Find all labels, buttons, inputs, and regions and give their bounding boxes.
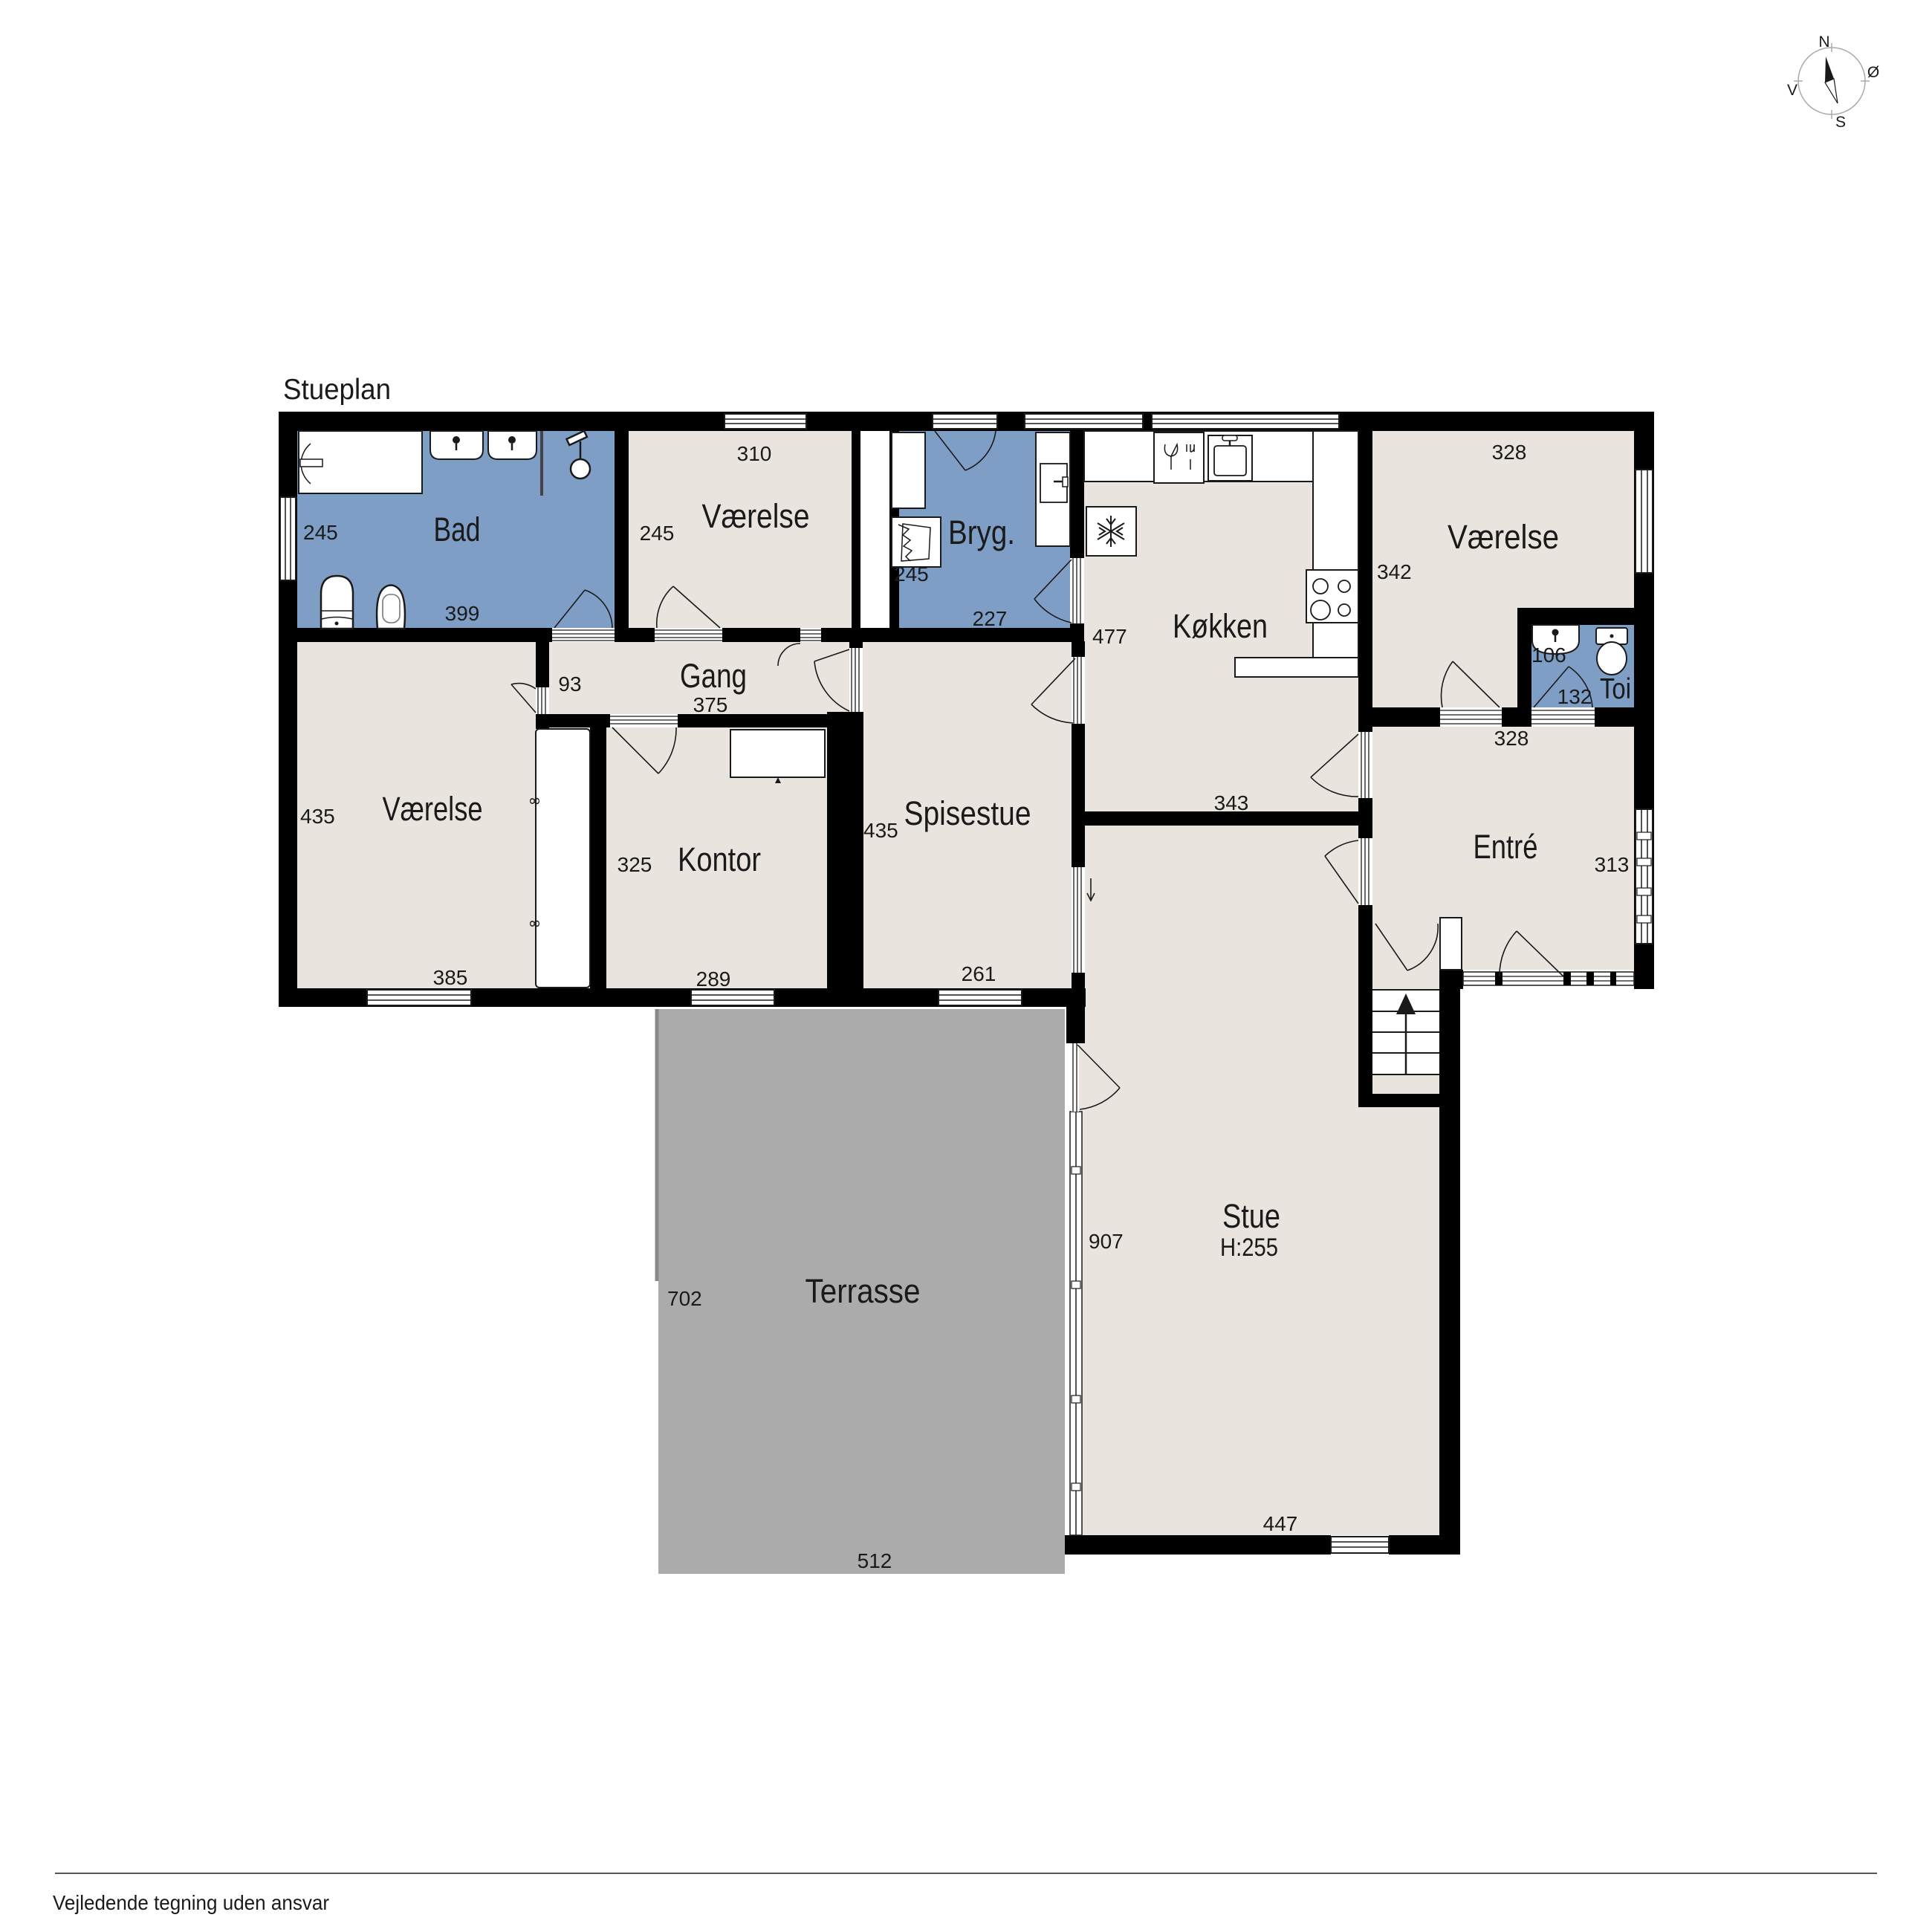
svg-text:Spisestue: Spisestue (904, 794, 1031, 832)
svg-text:325: 325 (617, 853, 652, 876)
svg-text:106: 106 (1531, 644, 1566, 667)
svg-text:Værelse: Værelse (1448, 518, 1559, 556)
svg-text:328: 328 (1494, 727, 1529, 750)
svg-text:289: 289 (696, 967, 731, 991)
svg-text:343: 343 (1214, 791, 1249, 814)
svg-text:245: 245 (640, 522, 675, 545)
svg-text:V: V (1787, 82, 1798, 99)
svg-text:Entré: Entré (1474, 828, 1538, 866)
svg-text:Vejledende tegning uden ansvar: Vejledende tegning uden ansvar (53, 1891, 329, 1914)
svg-text:907: 907 (1089, 1230, 1124, 1253)
svg-text:477: 477 (1092, 625, 1127, 648)
svg-text:8: 8 (528, 797, 542, 805)
svg-text:375: 375 (693, 693, 728, 716)
svg-text:Værelse: Værelse (702, 497, 810, 535)
svg-text:Køkken: Køkken (1173, 607, 1268, 645)
svg-text:310: 310 (737, 442, 772, 465)
svg-text:702: 702 (667, 1287, 702, 1310)
svg-text:N: N (1818, 33, 1829, 51)
svg-text:Terrasse: Terrasse (805, 1272, 921, 1310)
svg-text:261: 261 (962, 962, 996, 985)
svg-text:227: 227 (973, 607, 1008, 630)
svg-text:93: 93 (558, 672, 581, 696)
svg-text:S: S (1835, 114, 1846, 131)
svg-text:435: 435 (863, 819, 898, 842)
svg-text:Stue: Stue (1222, 1197, 1280, 1235)
svg-text:Kontor: Kontor (678, 840, 761, 878)
svg-text:313: 313 (1595, 853, 1630, 876)
svg-text:245: 245 (303, 521, 338, 544)
svg-text:342: 342 (1377, 560, 1412, 583)
svg-text:Bryg.: Bryg. (948, 513, 1015, 551)
svg-text:H:255: H:255 (1220, 1234, 1278, 1262)
svg-text:Værelse: Værelse (383, 790, 483, 828)
svg-text:Gang: Gang (680, 657, 747, 695)
svg-text:399: 399 (445, 602, 480, 625)
svg-text:Stueplan: Stueplan (283, 374, 391, 406)
svg-text:132: 132 (1557, 685, 1592, 708)
svg-text:Toi: Toi (1600, 673, 1631, 705)
svg-text:245: 245 (894, 563, 929, 586)
svg-text:512: 512 (858, 1549, 892, 1572)
svg-text:328: 328 (1492, 441, 1527, 464)
svg-text:8: 8 (528, 920, 542, 927)
svg-text:447: 447 (1263, 1512, 1298, 1535)
svg-text:Bad: Bad (434, 510, 481, 548)
svg-text:385: 385 (433, 966, 468, 989)
svg-text:Ø: Ø (1867, 64, 1879, 81)
svg-text:435: 435 (300, 805, 335, 828)
